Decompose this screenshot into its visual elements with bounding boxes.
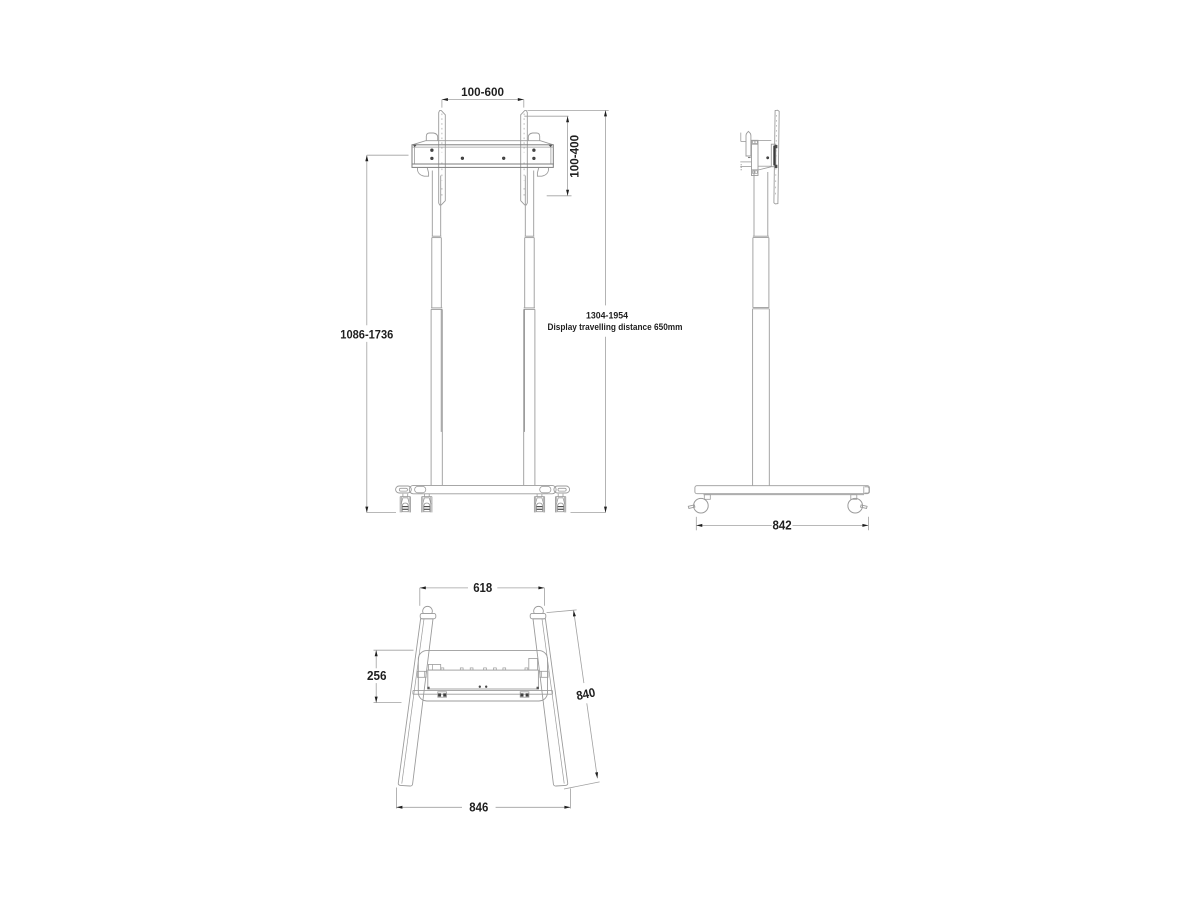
svg-text:Display travelling distance 65: Display travelling distance 650mm xyxy=(548,322,683,333)
svg-text:840: 840 xyxy=(575,685,597,703)
svg-text:842: 842 xyxy=(773,519,792,533)
svg-text:846: 846 xyxy=(469,801,488,815)
svg-text:256: 256 xyxy=(367,669,387,683)
svg-text:100-400: 100-400 xyxy=(570,135,582,178)
svg-text:100-600: 100-600 xyxy=(461,87,504,99)
svg-text:618: 618 xyxy=(473,581,492,595)
svg-text:1304-1954: 1304-1954 xyxy=(586,311,629,322)
svg-text:1086-1736: 1086-1736 xyxy=(340,330,393,342)
